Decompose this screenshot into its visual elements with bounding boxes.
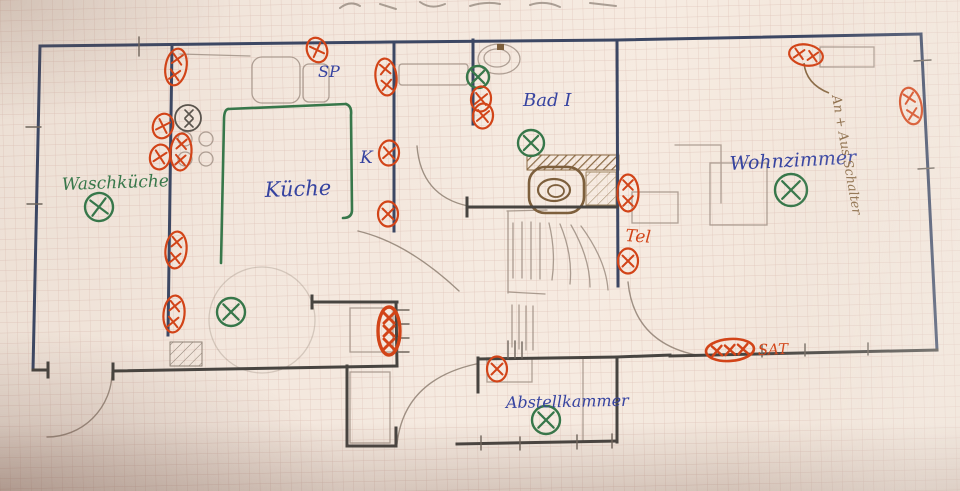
- floorplan-svg: Waschküche Küche Bad I Wohnzimmer Abstel…: [0, 0, 960, 491]
- annotation-tel: Tel: [625, 226, 652, 248]
- shower-hatch: [586, 172, 616, 205]
- room-label-waschkueche: Waschküche: [61, 171, 169, 195]
- annotation-sp: SP: [318, 62, 340, 81]
- sink-faucet: [497, 44, 504, 50]
- room-label-kueche: Küche: [263, 176, 331, 202]
- room-label-bad: Bad I: [522, 90, 572, 111]
- annotation-sat: SAT: [758, 340, 790, 359]
- floorplan-photo: Waschküche Küche Bad I Wohnzimmer Abstel…: [0, 0, 960, 491]
- room-label-abstellkammer: Abstellkammer: [504, 391, 630, 412]
- annotation-k: K: [359, 148, 374, 168]
- chimney-hatch: [170, 342, 202, 366]
